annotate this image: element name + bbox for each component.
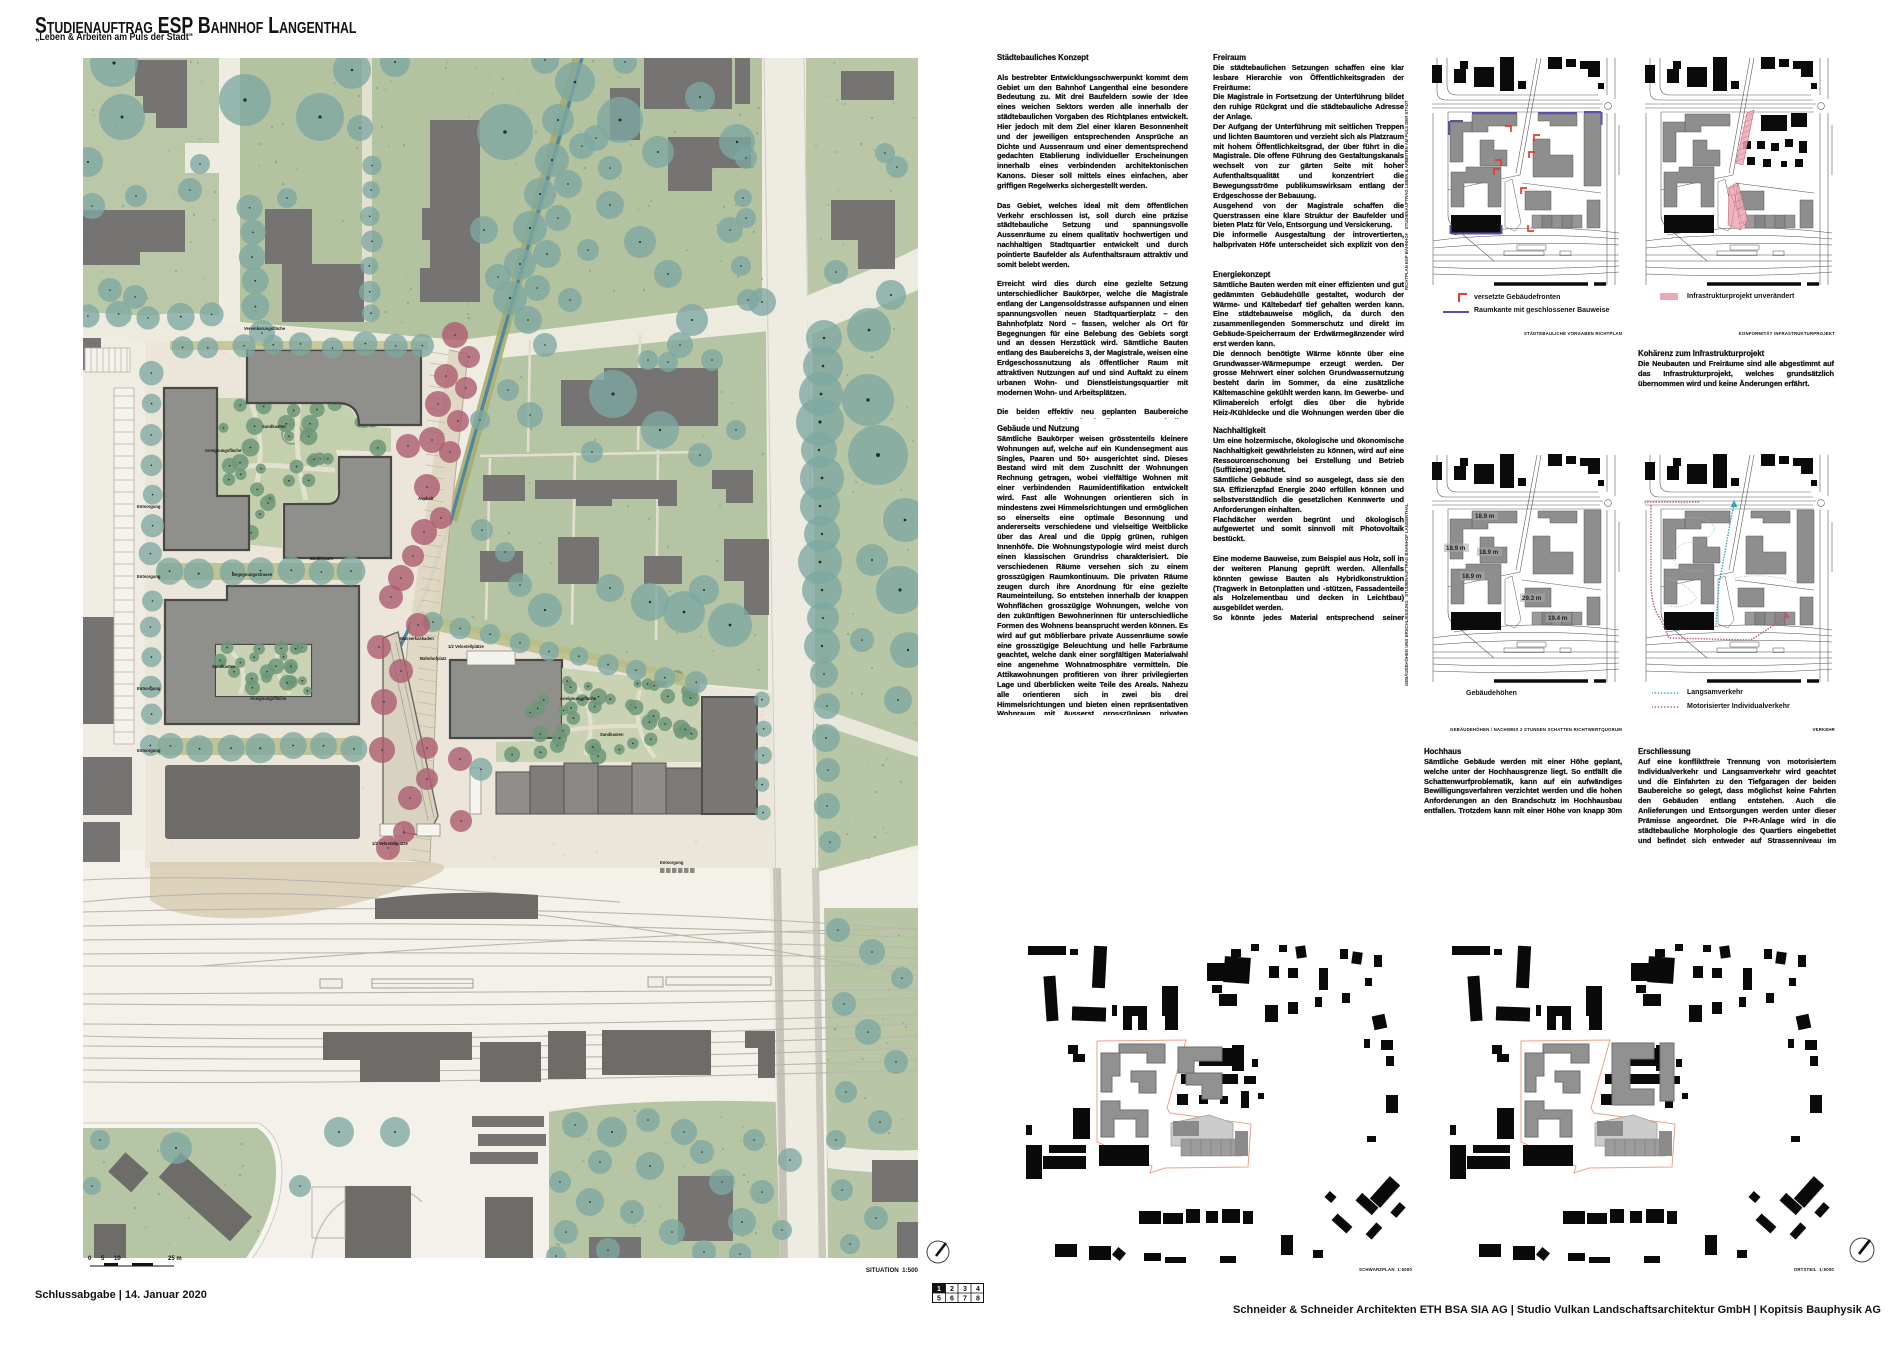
svg-text:Aneignungsfläche: Aneignungsfläche	[250, 696, 287, 701]
svg-text:Entsorgung: Entsorgung	[137, 748, 161, 753]
svg-text:Wasserkaskaden: Wasserkaskaden	[400, 636, 434, 641]
svg-text:10: 10	[114, 1256, 121, 1262]
svg-text:2: 2	[950, 1286, 954, 1293]
svg-text:18.9 m: 18.9 m	[1446, 545, 1466, 552]
svg-text:Aneignungsfläche: Aneignungsfläche	[205, 448, 242, 453]
svg-text:Bäukeraum: Bäukeraum	[310, 556, 333, 561]
svg-text:6: 6	[950, 1296, 954, 1303]
svg-text:Sandkasten: Sandkasten	[262, 424, 286, 429]
svg-text:Begegnungsstrasse: Begegnungsstrasse	[232, 572, 273, 577]
svg-text:18.9 m: 18.9 m	[1462, 573, 1482, 580]
svg-text:Entsorgung: Entsorgung	[660, 860, 684, 865]
svg-text:19.4 m: 19.4 m	[1548, 615, 1568, 622]
svg-text:1: 1	[937, 1286, 941, 1293]
svg-text:8: 8	[976, 1296, 980, 1303]
svg-text:Aneignungsfläche: Aneignungsfläche	[560, 696, 597, 701]
svg-text:Entsorgung: Entsorgung	[137, 686, 161, 691]
svg-text:3: 3	[963, 1286, 967, 1293]
svg-text:1/2 Velostellplätze: 1/2 Velostellplätze	[448, 644, 485, 649]
svg-text:18.9 m: 18.9 m	[1475, 513, 1495, 520]
svg-text:Vereinbarungsfläche: Vereinbarungsfläche	[244, 326, 286, 331]
svg-text:Entsorgung: Entsorgung	[137, 504, 161, 509]
svg-text:1/2 Velostellplätze: 1/2 Velostellplätze	[372, 841, 409, 846]
svg-text:Entsorgung: Entsorgung	[137, 574, 161, 579]
svg-text:Bahnhofplatz: Bahnhofplatz	[420, 656, 447, 661]
svg-text:Sandkasten: Sandkasten	[600, 732, 624, 737]
svg-text:Sandkasten: Sandkasten	[212, 664, 236, 669]
svg-text:4: 4	[976, 1286, 980, 1293]
svg-text:5: 5	[937, 1296, 941, 1303]
svg-text:7: 7	[963, 1296, 967, 1303]
svg-text:29.3 m: 29.3 m	[1522, 595, 1542, 602]
svg-text:SITUATION 1:500: SITUATION 1:500	[866, 1267, 919, 1274]
svg-text:Asphalt: Asphalt	[418, 496, 434, 501]
svg-text:25 m: 25 m	[168, 1256, 182, 1262]
svg-text:18.9 m: 18.9 m	[1479, 549, 1499, 556]
